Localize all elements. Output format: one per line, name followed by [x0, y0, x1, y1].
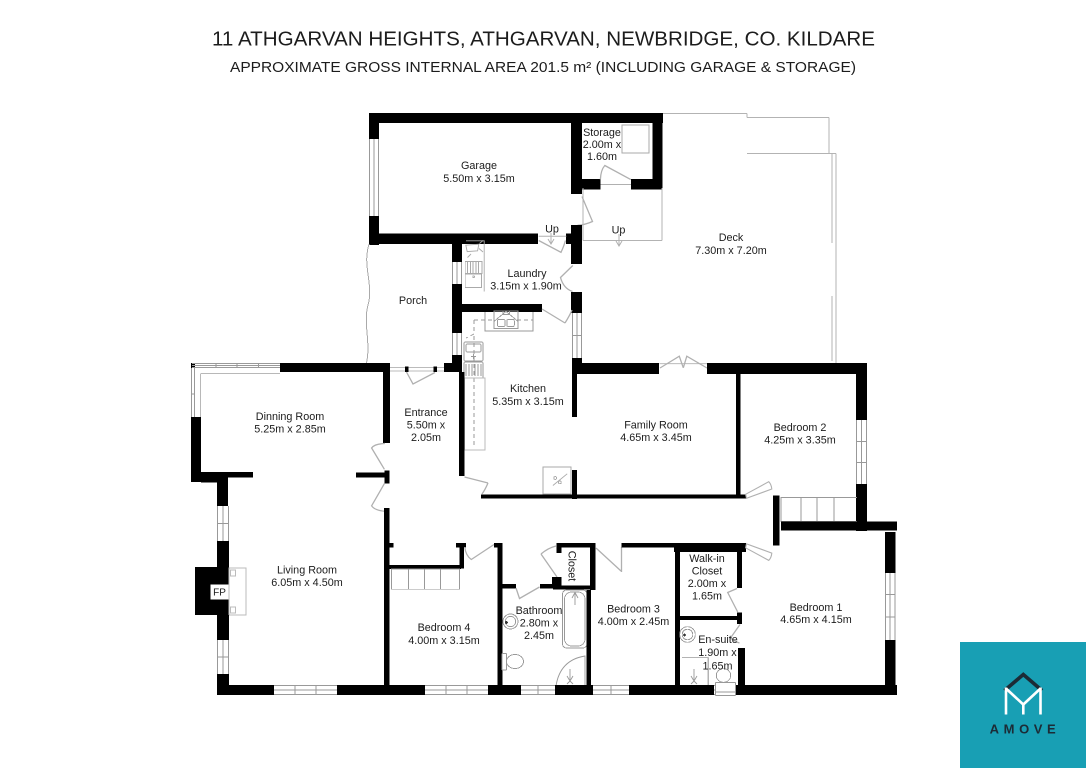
svg-text:Up: Up	[612, 225, 626, 237]
svg-text:2.00m x: 2.00m x	[583, 139, 622, 151]
svg-text:Deck: Deck	[719, 232, 744, 244]
svg-text:Porch: Porch	[399, 295, 427, 307]
svg-text:2.00m x: 2.00m x	[688, 578, 727, 590]
svg-text:Bathroom: Bathroom	[516, 605, 563, 617]
svg-text:AMOVE: AMOVE	[990, 722, 1061, 737]
svg-text:2.05m: 2.05m	[411, 432, 441, 444]
svg-text:11 ATHGARVAN HEIGHTS, ATHGARVA: 11 ATHGARVAN HEIGHTS, ATHGARVAN, NEWBRID…	[212, 29, 875, 51]
svg-text:Closet: Closet	[566, 551, 578, 582]
svg-text:Walk-in: Walk-in	[689, 553, 725, 565]
svg-text:Entrance: Entrance	[404, 407, 447, 419]
svg-text:Family Room: Family Room	[624, 420, 688, 432]
svg-text:Living Room: Living Room	[277, 565, 337, 577]
svg-text:Garage: Garage	[461, 160, 497, 172]
svg-text:4.65m x 3.45m: 4.65m x 3.45m	[620, 432, 691, 444]
svg-text:Kitchen: Kitchen	[510, 383, 546, 395]
svg-text:3.15m x 1.90m: 3.15m x 1.90m	[490, 281, 561, 293]
svg-text:En-suite: En-suite	[698, 634, 738, 646]
svg-text:2.45m: 2.45m	[524, 630, 554, 642]
svg-text:5.35m x 3.15m: 5.35m x 3.15m	[492, 396, 563, 408]
svg-text:Closet: Closet	[692, 566, 723, 578]
svg-text:4.65m x 4.15m: 4.65m x 4.15m	[780, 614, 851, 626]
svg-text:5.50m x: 5.50m x	[407, 420, 446, 432]
svg-text:Dinning Room: Dinning Room	[256, 411, 324, 423]
svg-text:Bedroom 3: Bedroom 3	[607, 604, 660, 616]
svg-text:4.25m x 3.35m: 4.25m x 3.35m	[764, 435, 835, 447]
svg-text:FP: FP	[213, 588, 226, 599]
svg-text:Storage: Storage	[583, 127, 621, 139]
svg-text:1.60m: 1.60m	[587, 151, 617, 163]
svg-text:Bedroom 4: Bedroom 4	[418, 622, 471, 634]
svg-text:5.50m x 3.15m: 5.50m x 3.15m	[443, 173, 514, 185]
svg-text:7.30m x 7.20m: 7.30m x 7.20m	[695, 245, 766, 257]
svg-text:Laundry: Laundry	[507, 268, 547, 280]
svg-text:APPROXIMATE GROSS INTERNAL ARE: APPROXIMATE GROSS INTERNAL AREA 201.5 m²…	[230, 60, 856, 76]
svg-text:5.25m x 2.85m: 5.25m x 2.85m	[254, 424, 325, 436]
svg-text:2.80m x: 2.80m x	[520, 618, 559, 630]
svg-text:1.90m x: 1.90m x	[698, 647, 737, 659]
svg-text:1.65m: 1.65m	[702, 661, 732, 673]
svg-text:Bedroom 1: Bedroom 1	[790, 602, 843, 614]
svg-text:Bedroom 2: Bedroom 2	[774, 422, 827, 434]
svg-text:4.00m x 3.15m: 4.00m x 3.15m	[408, 635, 479, 647]
svg-text:4.00m x 2.45m: 4.00m x 2.45m	[598, 616, 669, 628]
svg-text:Up: Up	[545, 224, 559, 236]
svg-text:6.05m x 4.50m: 6.05m x 4.50m	[271, 577, 342, 589]
svg-text:1.65m: 1.65m	[692, 591, 722, 603]
